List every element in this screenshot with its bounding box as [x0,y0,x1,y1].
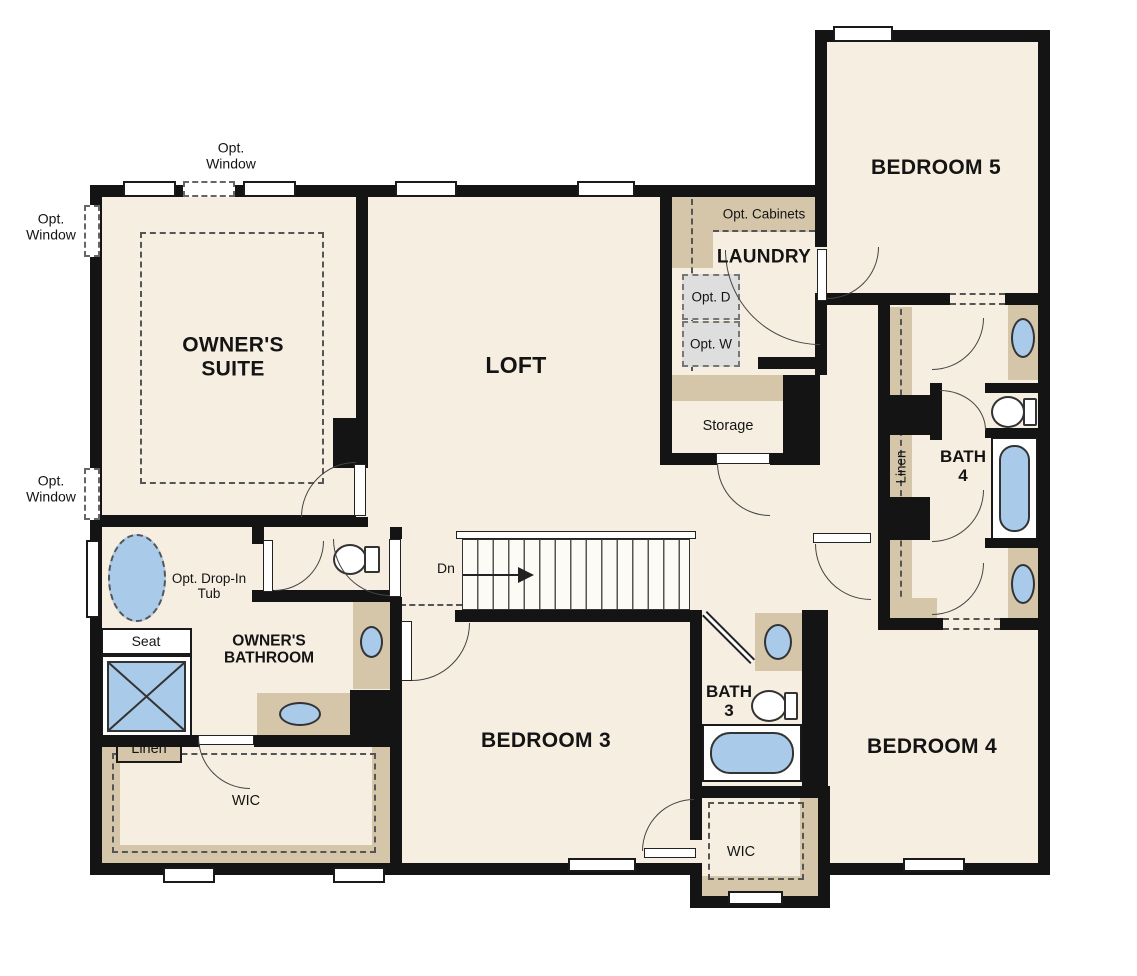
bedroom5-opt-opening [950,293,1005,305]
room-label-owners-linen: Linen [131,741,166,757]
room-label-bedroom4: BEDROOM 4 [867,735,997,759]
bedroom4-opt-opening [943,618,1000,630]
wall-bedroom5-left [815,30,827,197]
opt-drop-in-tub [108,534,166,622]
room-label-storage: Storage [703,418,754,434]
wall-storage-right-block [783,375,820,465]
window-hall-wic-bottom [728,891,783,905]
room-label-laundry: LAUNDRY [717,246,811,267]
wall-hall-right [878,305,890,630]
bath4-upper-sink [1011,318,1035,358]
stair-opening-dashed [400,604,462,606]
shower-pan [107,661,186,732]
window-bedroom5-top [833,26,893,42]
window-loft-top-2 [577,181,635,197]
window-loft-top-1 [395,181,457,197]
wall-laundry-left [660,197,672,465]
wall-bath4-divider-a [985,383,1038,393]
storage-shelf [672,375,783,401]
wall-bath4-divider-c [985,538,1038,548]
window-owners-wic-2 [333,867,385,883]
bath4-tub [999,445,1030,532]
owners-bath-side-sink [360,626,383,658]
annotation-opt-drop-in-tub: Opt. Drop-In Tub [171,571,247,601]
wall-storage-bottom-b [770,453,783,465]
wall-stairs-bottom [455,610,702,622]
window-suite-top-2 [243,181,296,197]
wall-left [90,185,102,875]
opt-window-top [183,181,235,197]
bath3-sink [764,624,792,660]
annotation-opt-cabinets: Opt. Cabinets [722,206,806,221]
room-label-loft: LOFT [485,353,546,379]
bedroom4-corner-counter [888,598,937,618]
bath4-toilet-bowl [991,396,1025,428]
room-label-hall-wic: WIC [727,844,755,860]
wall-hall-linen-block-upper [888,395,930,435]
wall-owners-bath-bottom-b [254,735,390,747]
stair-rail [456,531,696,539]
window-bedroom4-bottom [903,858,965,872]
wall-storage-bottom-a [660,453,717,465]
wall-wic-bump-right [818,863,830,908]
bath3-toilet-tank [784,692,798,720]
annotation-opt-window-top: Opt. Window [195,140,267,171]
wall-owners-vanity-block [350,690,390,737]
annotation-opt-washer: Opt. W [689,336,733,351]
room-label-bath3: BATH 3 [701,682,757,720]
room-label-bath4: BATH 4 [935,447,991,485]
window-suite-top-1 [123,181,176,197]
room-label-owners-wic: WIC [232,793,260,809]
room-label-bedroom3: BEDROOM 3 [481,729,611,753]
owners-bath-bottom-sink [279,702,321,726]
room-label-bedroom5: BEDROOM 5 [871,156,1001,180]
hall-wic-shelf-outline [708,802,804,880]
stairs-down-arrow-head [518,567,534,583]
annotation-shower-seat: Seat [132,634,161,650]
wall-bath4-divider-b [985,428,1038,438]
stairs-down-arrow-line [463,574,519,576]
wall-bedroom5-bottom-b [1005,293,1038,305]
wall-laundry-right-upper [815,197,827,247]
window-bedroom3-bottom [568,858,636,872]
room-label-owners-suite: OWNER'S SUITE [168,333,298,380]
bath4-toilet-tank [1023,398,1037,426]
wall-bath3-right-column [802,610,828,790]
door-leaf-bedroom3 [401,621,412,681]
wall-right [1038,30,1050,875]
shower-x-icon [109,663,184,730]
door-leaf-owners-toilet [263,540,273,592]
wall-bath-hall-lower [390,597,402,610]
annotation-opt-window-left-lower: Opt. Window [15,473,87,504]
wall-bedroom4-left [818,790,830,863]
annotation-stairs-down: Dn [437,561,455,577]
window-owners-bath-left [86,540,100,618]
room-label-owners-bathroom: OWNER'S BATHROOM [199,633,339,668]
bath3-tub [710,732,794,774]
bath4-lower-sink [1011,564,1035,604]
wall-suite-loft-stub [356,517,368,527]
door-leaf-bedroom4 [813,533,871,543]
annotation-opt-window-left-upper: Opt. Window [15,211,87,242]
floor-plan: OWNER'S SUITE LOFT LAUNDRY BEDROOM 5 BED… [0,0,1137,976]
room-label-hall-linen: Linen [893,450,908,483]
window-owners-wic-1 [163,867,215,883]
door-leaf-owners-bath [389,539,401,597]
wall-hall-wic-top [690,786,830,798]
wall-laundry-door-stub [758,357,818,369]
wall-hall-linen-block-lower [888,497,930,540]
wall-bath-hall-upper [390,527,402,539]
wall-suite-corner-block [333,418,368,468]
annotation-opt-dryer: Opt. D [689,289,733,304]
